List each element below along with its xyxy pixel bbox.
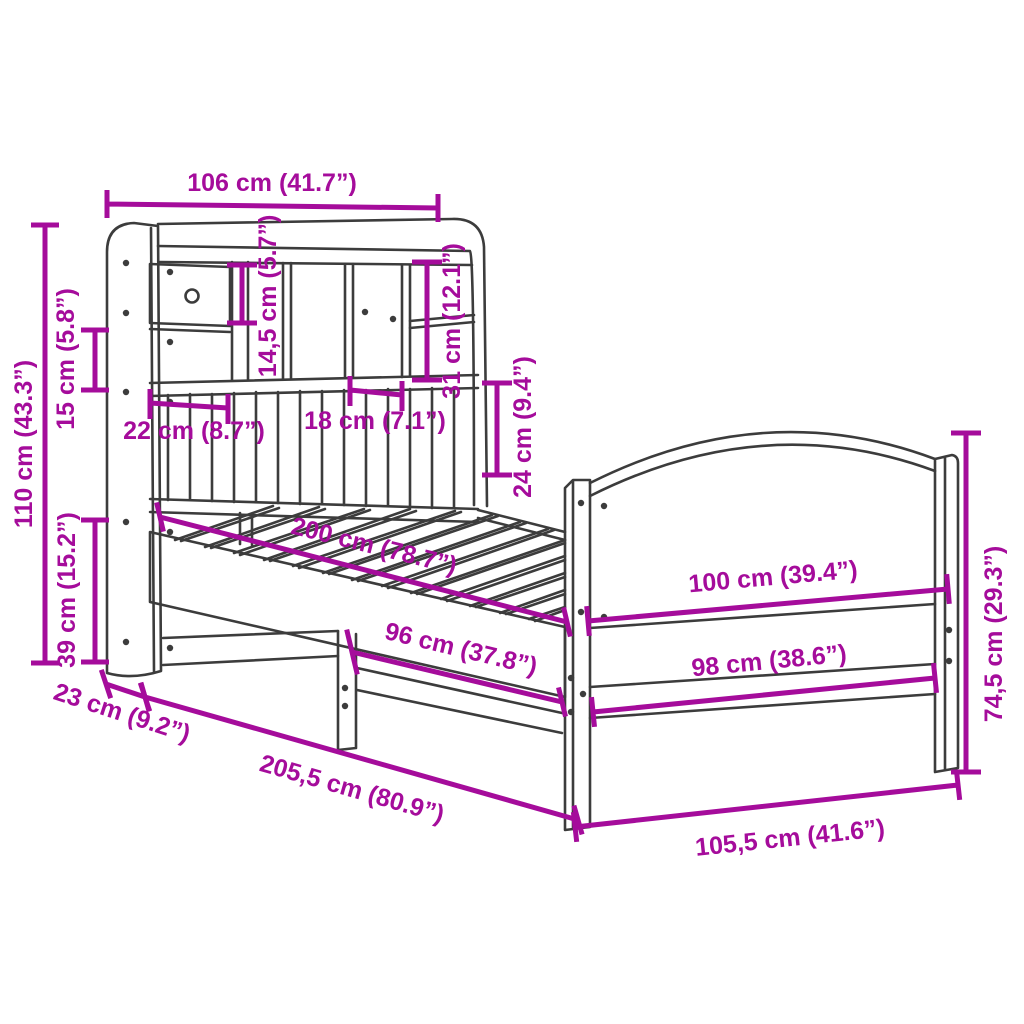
bed-dimension-diagram: 106 cm (41.7”) 110 cm (43.3”) 15 cm (5.8… <box>0 0 1024 1024</box>
dim-label-39cm: 39 cm (15.2”) <box>53 512 81 668</box>
diagram-canvas: 106 cm (41.7”) 110 cm (43.3”) 15 cm (5.8… <box>0 0 1024 1024</box>
dim-label-24cm: 24 cm (9.4”) <box>509 356 537 498</box>
dim-label-110cm: 110 cm (43.3”) <box>10 360 38 528</box>
dim-label-22cm: 22 cm (8.7”) <box>123 417 265 445</box>
dim-label-31cm: 31 cm (12.1”) <box>438 243 466 399</box>
dim-label-14-5cm: 14,5 cm (5.7”) <box>254 215 282 378</box>
dim-label-15cm: 15 cm (5.8”) <box>52 288 80 430</box>
dim-label-18cm: 18 cm (7.1”) <box>304 407 446 435</box>
dim-label-74-5cm: 74,5 cm (29.3”) <box>980 546 1008 723</box>
dim-label-106cm: 106 cm (41.7”) <box>187 169 357 197</box>
